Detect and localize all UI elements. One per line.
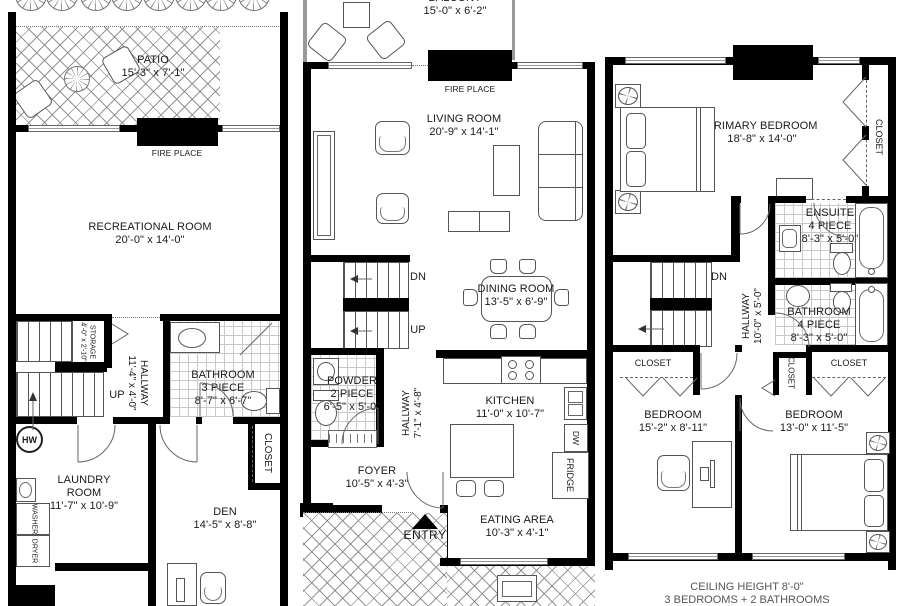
fridge-label: FRIDGE	[565, 458, 575, 492]
shelf-inner	[317, 135, 331, 236]
den-monitor	[176, 578, 185, 602]
laundry-sink-basin	[19, 482, 32, 498]
wall	[862, 126, 869, 140]
stool	[484, 480, 504, 497]
wall	[846, 196, 896, 203]
desk-chair	[657, 455, 690, 491]
island	[450, 424, 514, 478]
closet-label: CLOSET	[635, 358, 672, 368]
window	[752, 553, 845, 560]
coffee-table-line	[479, 212, 480, 231]
floor-plan: PATIO15'-3" x 7'-1" FIRE PLACE RECREATIO…	[0, 0, 910, 606]
tub-faucet-icon	[868, 286, 875, 293]
hallway-label: HALLWAY11'-4" x 4'-0"	[125, 355, 149, 410]
wall	[888, 57, 896, 570]
dining-room-label: DINING ROOM13'-5" x 6'-9"	[478, 283, 555, 309]
dining-chair	[490, 324, 507, 339]
wall	[768, 203, 775, 315]
wall	[280, 12, 288, 606]
balcony-door	[412, 65, 428, 66]
wall	[768, 196, 806, 203]
hallway-label: HALLWAY7'-1" x 4'-8"	[401, 388, 425, 438]
bedroom-label: BEDROOM13'-0" x 11'-5"	[780, 409, 848, 435]
bathroom-label: BATHROOM4 PIECE8'-3" x 5'-0"	[787, 306, 851, 345]
dining-chair	[519, 259, 536, 274]
wall	[731, 196, 740, 262]
blanket-line	[797, 455, 798, 530]
fireplace-label: FIRE PLACE	[152, 148, 203, 158]
wall	[148, 424, 156, 606]
wall	[613, 255, 740, 262]
stairs	[650, 310, 712, 347]
wall	[248, 483, 288, 490]
burner-icon	[508, 371, 517, 380]
shrub-icon	[111, 0, 143, 11]
shrub-icon	[143, 0, 175, 11]
foyer-closet	[328, 430, 377, 448]
blanket-line	[700, 108, 701, 191]
nightstand-fan-icon	[615, 84, 641, 108]
wall	[233, 417, 288, 424]
plan-notes: CEILING HEIGHT 8'-0" 3 BEDROOMS + 2 BATH…	[664, 581, 829, 606]
pillow	[864, 495, 884, 527]
wall	[8, 417, 77, 424]
bedroom-label: BEDROOM15'-2" x 8'-11"	[639, 409, 707, 435]
stair-wall	[650, 298, 712, 310]
fireplace	[137, 118, 218, 146]
dining-chair	[554, 289, 569, 306]
pillow	[626, 113, 646, 149]
wall	[862, 186, 869, 196]
window	[460, 558, 548, 565]
shrub-icon	[205, 0, 237, 11]
wall	[8, 314, 110, 321]
closet-rod	[620, 377, 693, 378]
toilet-tank	[266, 388, 280, 414]
closet-label: CLOSET	[831, 358, 868, 368]
bathtub-basin	[859, 207, 884, 269]
living-room-label: LIVING ROOM20'-9" x 14'-1"	[427, 113, 501, 139]
sink-basin	[568, 404, 583, 416]
wall	[8, 12, 16, 606]
balcony-chair	[365, 19, 407, 61]
nightstand-fan-icon	[866, 531, 890, 553]
stairs	[650, 262, 712, 299]
closet-rod	[812, 377, 886, 378]
armchair	[376, 193, 409, 224]
hw-label: HW	[22, 435, 37, 445]
wall	[8, 585, 55, 606]
shrub-icon	[238, 0, 270, 11]
stairs	[343, 262, 409, 299]
blanket-line	[696, 108, 697, 191]
hot-water-tank: HW	[16, 426, 43, 453]
burner-icon	[508, 360, 517, 369]
shrub-icon	[175, 0, 207, 11]
primary-bedroom-label: PRIMARY BEDROOM18'-8" x 14'-0"	[706, 120, 817, 146]
storage-label: STORAGE4'-0" x 2'-10"	[79, 322, 96, 361]
bathroom-label: BATHROOM3 PIECE8'-7" x 6'-7"	[191, 369, 255, 408]
pillow	[626, 151, 646, 187]
window	[517, 62, 583, 69]
window	[28, 125, 120, 132]
stair-wall	[343, 298, 409, 311]
closet-rod	[252, 426, 253, 482]
entry-label: ENTRY	[404, 529, 447, 542]
stool	[456, 480, 476, 497]
dining-chair	[519, 324, 536, 339]
sofa	[538, 121, 583, 221]
den-label: DEN14'-5" x 8'-8"	[194, 506, 257, 532]
eating-area-label: EATING AREA10'-3" x 4'-1"	[480, 514, 554, 540]
patio-label: PATIO15'-3" x 7'-1"	[122, 54, 185, 80]
ensuite-opening	[806, 199, 846, 200]
shrub-icon	[80, 0, 112, 11]
opening	[112, 317, 160, 318]
dining-chair	[463, 289, 478, 306]
up-label: UP	[109, 389, 124, 402]
stairs	[343, 311, 409, 349]
wall	[613, 345, 700, 352]
bathtub-basin	[859, 289, 884, 342]
wall	[862, 65, 869, 80]
shrub-icon	[46, 0, 78, 11]
ensuite-label: ENSUITE4 PIECE8'-3" x 5'-0"	[802, 207, 859, 246]
dn-label: DN	[711, 271, 727, 284]
armchair	[375, 121, 410, 155]
sink-basin	[568, 391, 583, 403]
dn-label: DN	[410, 271, 426, 284]
walkway-edge	[303, 512, 413, 513]
window	[625, 57, 726, 64]
wall	[196, 417, 202, 424]
dryer-label: DRYER	[29, 539, 38, 563]
foyer-label: FOYER10'-5" x 4'-3"	[346, 465, 409, 491]
stairs	[16, 372, 104, 417]
den-chair	[200, 572, 226, 604]
wall	[605, 57, 613, 570]
wall	[735, 345, 742, 352]
ensuite-sink	[782, 229, 797, 248]
patio-edge	[15, 26, 283, 27]
burner-icon	[525, 360, 534, 369]
laundry-label: LAUNDRY ROOM 11'-7" x 10'-9"	[49, 474, 119, 513]
window	[628, 553, 718, 560]
wall	[55, 563, 156, 571]
wall	[104, 314, 112, 368]
up-label: UP	[410, 324, 425, 337]
powder-label: POWDER2 PIECE6'-5" x 5'-0"	[324, 375, 381, 414]
burner-icon	[525, 371, 534, 380]
stove	[501, 356, 541, 384]
wall	[773, 352, 779, 395]
balcony-rail	[303, 0, 307, 62]
kitchen-label: KITCHEN11'-0" x 10'-7"	[476, 395, 544, 421]
balcony-table	[343, 2, 370, 28]
fireplace	[428, 50, 512, 81]
bed-bath-note: 3 BEDROOMS + 2 BATHROOMS	[664, 594, 829, 606]
toilet-bowl	[833, 252, 851, 275]
den-closet-label: CLOSET	[261, 433, 273, 473]
blanket-line	[801, 455, 802, 530]
wall	[806, 345, 896, 352]
window	[328, 62, 412, 69]
ceiling-height-note: CEILING HEIGHT 8'-0"	[664, 581, 829, 594]
fireplace-label: FIRE PLACE	[445, 84, 496, 94]
stairs	[16, 321, 72, 362]
bathroom-sink	[786, 285, 810, 307]
wall	[693, 352, 700, 395]
dishwasher-label: DW	[571, 431, 581, 445]
balcony-rail	[512, 0, 515, 60]
balcony-chair	[306, 21, 348, 63]
desk-monitor-base	[700, 467, 709, 481]
pillow	[864, 459, 884, 492]
nightstand-fan-icon	[866, 432, 890, 454]
primary-closet-label: CLOSET	[874, 119, 884, 155]
chimney	[733, 45, 813, 80]
window	[818, 57, 860, 64]
stair-rail	[72, 321, 73, 368]
wall	[806, 352, 812, 395]
desk-monitor	[710, 460, 715, 488]
dining-chair	[490, 259, 507, 274]
bench-inner	[502, 581, 532, 597]
bathroom-sink	[178, 328, 206, 348]
washer-label: WASHER	[29, 504, 38, 534]
tub-faucet-icon	[868, 268, 875, 275]
closet-label: CLOSET	[787, 357, 796, 389]
side-table	[493, 145, 520, 196]
wall	[303, 255, 410, 262]
nightstand-fan-icon	[615, 190, 641, 214]
stair-wall	[55, 362, 107, 372]
wall	[303, 348, 380, 355]
window	[222, 125, 280, 132]
balcony-label: BALCONY15'-0" x 6'-2"	[424, 0, 487, 18]
wall	[735, 395, 742, 560]
rec-room-label: RECREATIONAL ROOM20'-0" x 14'-0"	[88, 221, 211, 247]
wall	[113, 417, 163, 424]
wall	[160, 314, 288, 321]
patio-plant-icon	[64, 66, 90, 92]
shrub-icon	[15, 0, 47, 11]
wall	[163, 314, 170, 424]
hallway-label: HALLWAY10'-0" x 5'-0"	[741, 288, 765, 344]
entry-arrow-icon	[412, 514, 438, 529]
